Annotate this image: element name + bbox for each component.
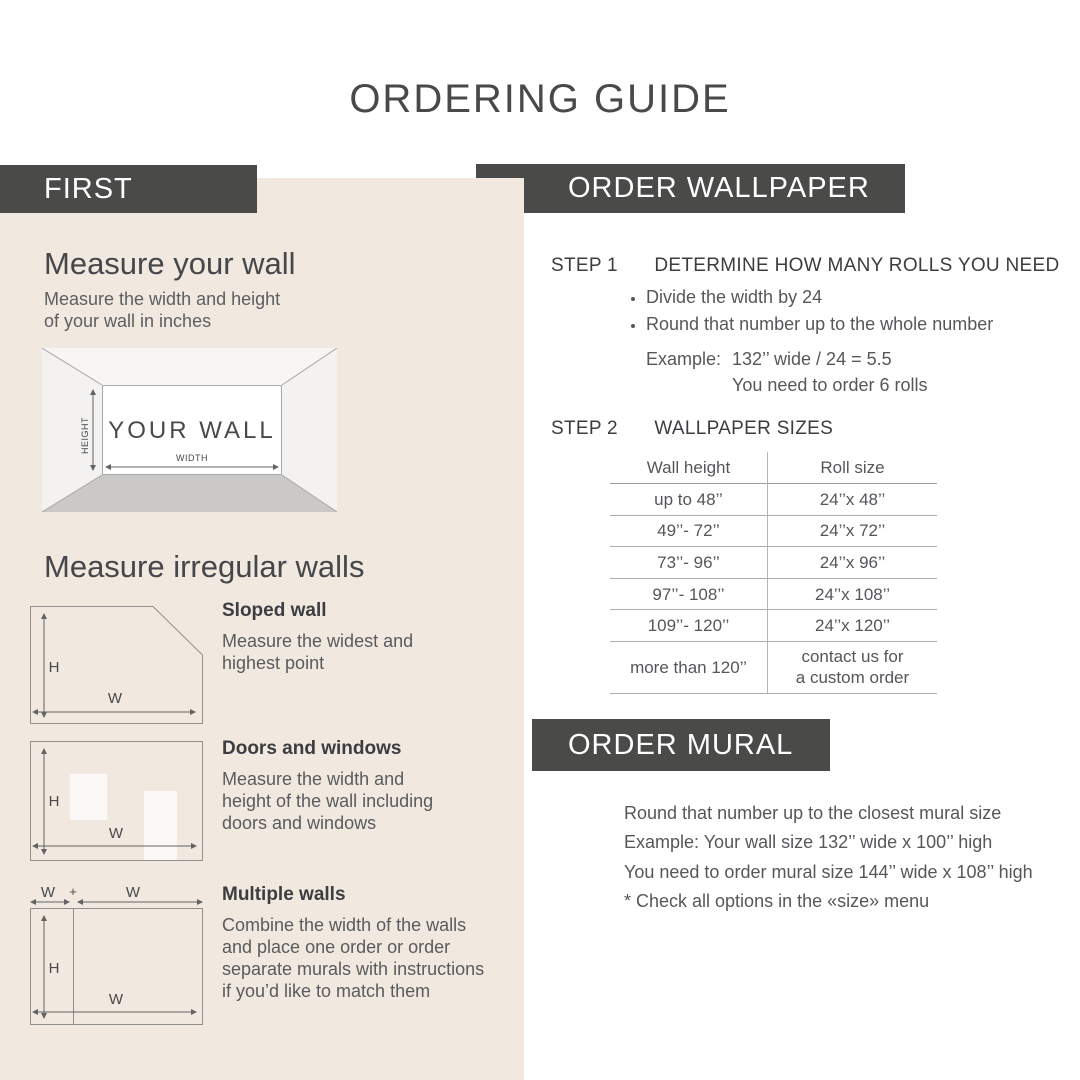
order-wallpaper-header-bar: ORDER WALLPAPER [476,164,905,213]
ordering-guide-page: ORDERING GUIDE ORDER WALLPAPER FIRST ORD… [0,0,1080,1080]
step1-example: Example: 132’’ wide / 24 = 5.5 You need … [646,346,927,398]
step1-title: DETERMINE HOW MANY ROLLS YOU NEED [654,255,1059,277]
first-header-label: FIRST [44,165,133,213]
mural-line-size-menu-note: * Check all options in the «size» menu [624,887,1033,916]
order-mural-header-label: ORDER MURAL [568,719,793,771]
step1-row: STEP 1 DETERMINE HOW MANY ROLLS YOU NEED [551,255,1060,277]
order-mural-header-bar: ORDER MURAL [532,719,830,771]
table-header-wall-height: Wall height [610,452,767,484]
step2-label: STEP 2 [551,418,618,440]
step1-bullet-list: Divide the width by 24 Round that number… [646,284,993,338]
table-cell-wall: more than 120’’ [610,642,767,694]
table-cell-roll: contact us for a custom order [767,642,937,694]
bullet-round-up: Round that number up to the whole number [646,311,993,338]
step1-label: STEP 1 [551,255,618,277]
step2-title: WALLPAPER SIZES [654,418,833,440]
table-cell-roll: 24’’x 96’’ [767,547,937,579]
example-lines: 132’’ wide / 24 = 5.5 You need to order … [732,346,927,398]
example-calculation: 132’’ wide / 24 = 5.5 [732,346,927,372]
first-header-bar: FIRST [0,165,257,213]
table-cell-roll: 24’’x 108’’ [767,579,937,611]
wallpaper-sizes-table: Wall height Roll size up to 48’’ 24’’x 4… [610,452,937,694]
table-cell-wall: 49’’- 72’’ [610,516,767,548]
table-header-roll-size: Roll size [767,452,937,484]
page-title: ORDERING GUIDE [0,77,1080,122]
example-label: Example: [646,346,732,398]
table-cell-roll: 24’’x 48’’ [767,484,937,516]
table-cell-wall: up to 48’’ [610,484,767,516]
table-cell-wall: 73’’- 96’’ [610,547,767,579]
mural-line-order-size: You need to order mural size 144’’ wide … [624,858,1033,887]
step2-row: STEP 2 WALLPAPER SIZES [551,418,833,440]
mural-line-round-up: Round that number up to the closest mura… [624,799,1033,828]
bullet-divide-width: Divide the width by 24 [646,284,993,311]
order-wallpaper-header-label: ORDER WALLPAPER [568,164,870,213]
table-cell-wall: 97’’- 108’’ [610,579,767,611]
mural-line-example: Example: Your wall size 132’’ wide x 100… [624,828,1033,857]
example-result: You need to order 6 rolls [732,372,927,398]
left-panel-background [0,178,524,1080]
table-cell-roll: 24’’x 120’’ [767,610,937,642]
table-cell-wall: 109’’- 120’’ [610,610,767,642]
table-cell-roll: 24’’x 72’’ [767,516,937,548]
order-mural-text: Round that number up to the closest mura… [624,799,1033,916]
